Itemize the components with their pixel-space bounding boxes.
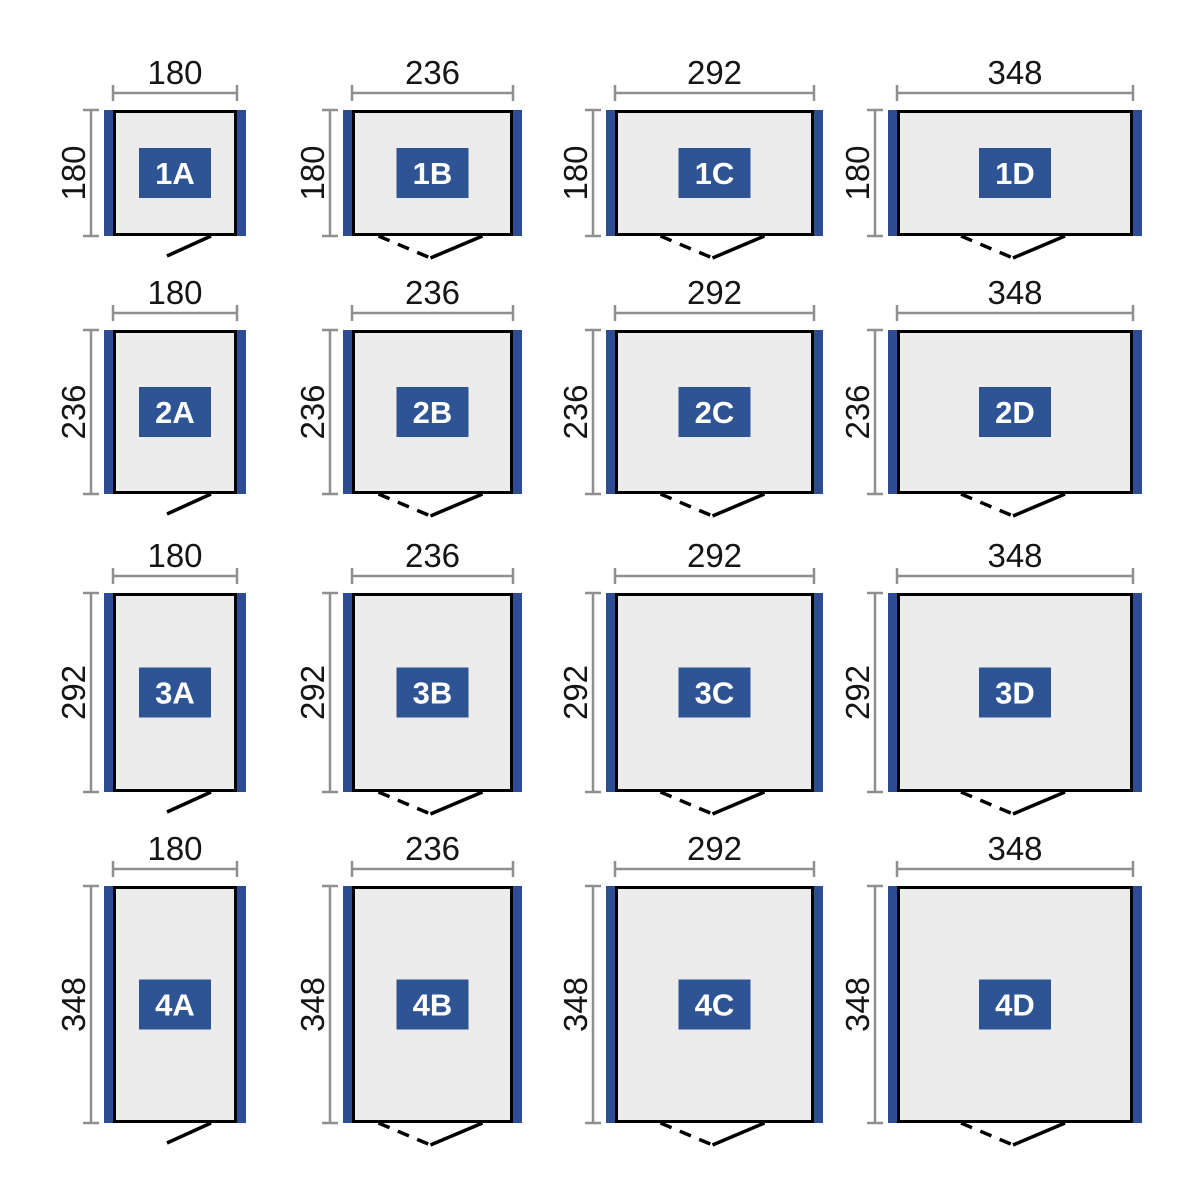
model-badge-label: 2D [995,395,1035,430]
plan-cell-3D: 3482923D [833,538,1154,835]
door-leaf-dashed-line [378,236,430,258]
right-wall-panel [237,330,246,494]
right-wall-panel [814,110,823,236]
model-badge-label: 2B [412,395,452,430]
door-leaf-dashed-line [378,792,430,814]
plan-cell-2C: 2922362C [551,275,835,537]
height-dimension-label: 292 [55,665,92,720]
plan-cell-4D: 3483484D [833,831,1154,1166]
plan-drawing-2D: 3482362D [833,275,1154,532]
door-swing-line [167,792,211,812]
plan-cell-4C: 2923484C [551,831,835,1166]
door-leaf-solid-line [712,1123,764,1145]
left-wall-panel [606,110,615,236]
door-leaf-solid-line [430,792,482,814]
left-wall-panel [343,110,352,236]
door-swing-line [167,236,211,256]
plan-cell-2A: 1802362A [49,275,258,537]
height-dimension-label: 180 [557,145,594,200]
plan-cell-4A: 1803484A [49,831,258,1166]
door-leaf-dashed-line [660,236,712,258]
door-leaf-dashed-line [660,1123,712,1145]
width-dimension-label: 292 [686,538,741,574]
floor-plan-grid: 1801801A2361801B2921801C3481801D1802362A… [0,0,1200,1200]
door-leaf-solid-line [430,236,482,258]
height-dimension-label: 236 [839,384,876,439]
height-dimension-label: 348 [839,977,876,1032]
door-leaf-dashed-line [961,792,1013,814]
height-dimension-label: 292 [294,665,331,720]
left-wall-panel [104,593,113,792]
plan-drawing-1D: 3481801D [833,55,1154,274]
plan-cell-1D: 3481801D [833,55,1154,279]
door-leaf-dashed-line [961,236,1013,258]
width-dimension-label: 348 [987,538,1042,574]
door-leaf-dashed-line [660,494,712,516]
plan-drawing-1B: 2361801B [288,55,534,274]
plan-drawing-3B: 2362923B [288,538,534,830]
door-leaf-dashed-line [961,494,1013,516]
door-leaf-solid-line [430,494,482,516]
right-wall-panel [1133,593,1142,792]
right-wall-panel [814,886,823,1123]
plan-cell-2D: 3482362D [833,275,1154,537]
plan-cell-3A: 1802923A [49,538,258,835]
model-badge-label: 3A [155,676,195,711]
door-leaf-solid-line [712,494,764,516]
right-wall-panel [513,330,522,494]
left-wall-panel [104,330,113,494]
right-wall-panel [513,110,522,236]
plan-drawing-1A: 1801801A [49,55,258,274]
plan-cell-1C: 2921801C [551,55,835,279]
plan-cell-2B: 2362362B [288,275,534,537]
door-leaf-dashed-line [961,1123,1013,1145]
height-dimension-label: 236 [294,384,331,439]
left-wall-panel [888,330,897,494]
width-dimension-label: 180 [147,538,202,574]
door-swing-line [167,1123,211,1143]
model-badge-label: 1A [155,156,195,191]
model-badge-label: 4A [155,988,195,1023]
door-leaf-solid-line [1013,494,1065,516]
right-wall-panel [237,593,246,792]
door-leaf-solid-line [712,792,764,814]
plan-drawing-2B: 2362362B [288,275,534,532]
door-leaf-dashed-line [378,494,430,516]
plan-drawing-4B: 2363484B [288,831,534,1161]
width-dimension-label: 348 [987,275,1042,311]
left-wall-panel [606,330,615,494]
left-wall-panel [606,593,615,792]
plan-drawing-4D: 3483484D [833,831,1154,1161]
plan-drawing-4A: 1803484A [49,831,258,1161]
model-badge-label: 3D [995,676,1035,711]
height-dimension-label: 292 [839,665,876,720]
height-dimension-label: 292 [557,665,594,720]
door-leaf-solid-line [430,1123,482,1145]
width-dimension-label: 180 [147,275,202,311]
right-wall-panel [814,593,823,792]
plan-drawing-2C: 2922362C [551,275,835,532]
height-dimension-label: 236 [55,384,92,439]
width-dimension-label: 236 [404,55,459,91]
model-badge-label: 1B [412,156,452,191]
plan-drawing-2A: 1802362A [49,275,258,532]
width-dimension-label: 292 [686,55,741,91]
model-badge-label: 2A [155,395,195,430]
left-wall-panel [606,886,615,1123]
plan-drawing-3C: 2922923C [551,538,835,830]
left-wall-panel [888,593,897,792]
height-dimension-label: 348 [557,977,594,1032]
door-leaf-dashed-line [660,792,712,814]
plan-cell-4B: 2363484B [288,831,534,1166]
height-dimension-label: 236 [557,384,594,439]
height-dimension-label: 180 [294,145,331,200]
plan-drawing-1C: 2921801C [551,55,835,274]
height-dimension-label: 348 [294,977,331,1032]
plan-cell-1A: 1801801A [49,55,258,279]
door-leaf-solid-line [712,236,764,258]
right-wall-panel [513,593,522,792]
plan-cell-1B: 2361801B [288,55,534,279]
width-dimension-label: 236 [404,538,459,574]
model-badge-label: 1C [694,156,734,191]
width-dimension-label: 236 [404,831,459,867]
width-dimension-label: 236 [404,275,459,311]
model-badge-label: 3B [412,676,452,711]
model-badge-label: 3C [694,676,734,711]
right-wall-panel [237,110,246,236]
door-leaf-solid-line [1013,236,1065,258]
left-wall-panel [343,886,352,1123]
model-badge-label: 4B [412,988,452,1023]
right-wall-panel [814,330,823,494]
plan-drawing-3A: 1802923A [49,538,258,830]
right-wall-panel [1133,110,1142,236]
width-dimension-label: 180 [147,55,202,91]
door-leaf-dashed-line [378,1123,430,1145]
width-dimension-label: 348 [987,55,1042,91]
model-badge-label: 2C [694,395,734,430]
right-wall-panel [237,886,246,1123]
width-dimension-label: 348 [987,831,1042,867]
door-leaf-solid-line [1013,1123,1065,1145]
left-wall-panel [104,886,113,1123]
plan-drawing-3D: 3482923D [833,538,1154,830]
right-wall-panel [1133,330,1142,494]
left-wall-panel [888,886,897,1123]
right-wall-panel [1133,886,1142,1123]
door-swing-line [167,494,211,514]
left-wall-panel [343,330,352,494]
left-wall-panel [343,593,352,792]
model-badge-label: 4D [995,988,1035,1023]
width-dimension-label: 180 [147,831,202,867]
plan-cell-3B: 2362923B [288,538,534,835]
width-dimension-label: 292 [686,831,741,867]
right-wall-panel [513,886,522,1123]
height-dimension-label: 180 [55,145,92,200]
door-leaf-solid-line [1013,792,1065,814]
plan-drawing-4C: 2923484C [551,831,835,1161]
width-dimension-label: 292 [686,275,741,311]
height-dimension-label: 180 [839,145,876,200]
model-badge-label: 1D [995,156,1035,191]
left-wall-panel [104,110,113,236]
height-dimension-label: 348 [55,977,92,1032]
left-wall-panel [888,110,897,236]
plan-cell-3C: 2922923C [551,538,835,835]
model-badge-label: 4C [694,988,734,1023]
